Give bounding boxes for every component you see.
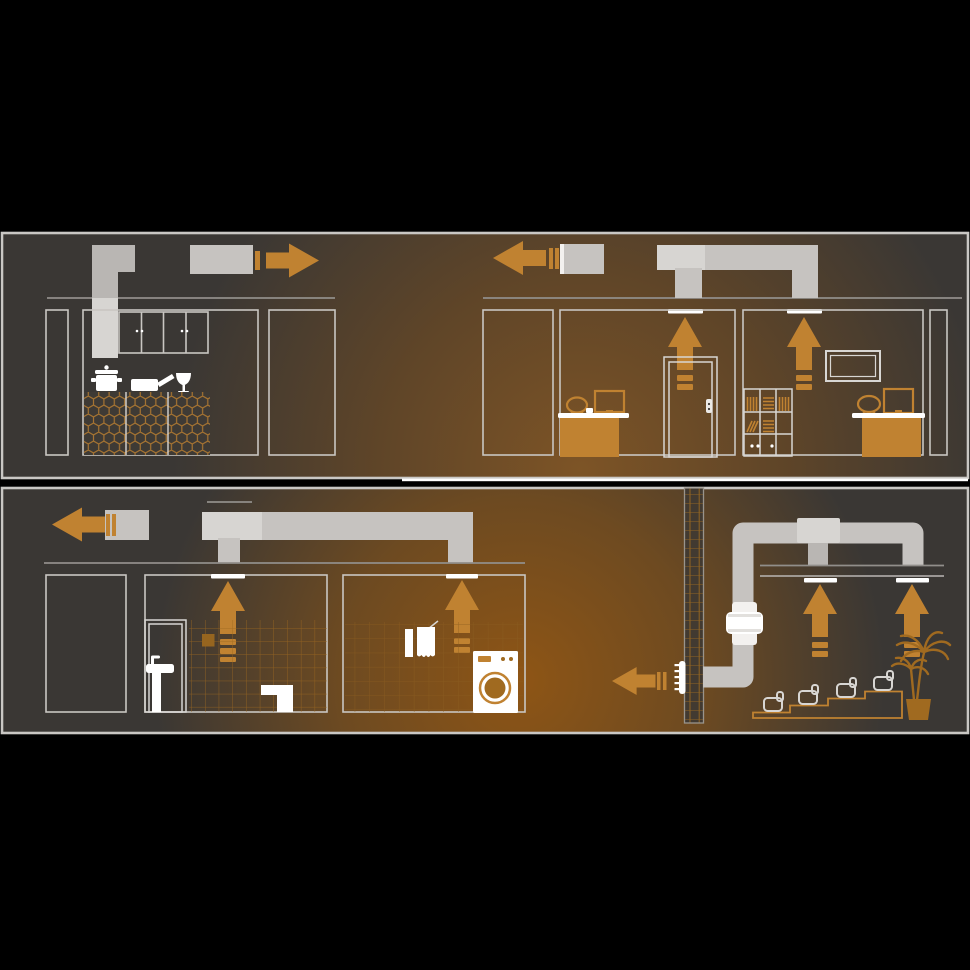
roof-line	[402, 479, 968, 482]
arrow-connector-bar	[663, 672, 667, 690]
scene-svg	[0, 0, 970, 970]
desk-top	[558, 413, 629, 418]
ventilation-scheme-illustration	[0, 0, 970, 970]
duct-open-end	[560, 244, 564, 274]
lower-panel	[2, 488, 968, 733]
ceiling-vent	[896, 578, 929, 583]
ceiling-vent	[804, 578, 837, 583]
arrow-connector-bar	[555, 248, 559, 269]
ceiling-vent	[446, 574, 478, 579]
office-desk-icon	[862, 418, 921, 457]
arrow-connector-bar	[657, 672, 661, 690]
cooker-hood-icon	[92, 298, 118, 358]
washing-machine-icon	[473, 651, 518, 713]
wall-grille-icon	[675, 661, 686, 694]
duct-shaft-icon	[685, 488, 704, 723]
arrow-connector-bar	[549, 248, 553, 269]
arrow-connector-bar	[255, 251, 260, 270]
upper-panel	[2, 233, 968, 478]
office-exhaust-duct	[560, 244, 604, 274]
bathroom-tiles	[189, 620, 327, 712]
t-branch-box	[797, 518, 840, 543]
honeycomb-counter-icon	[84, 392, 210, 455]
bath-exhaust-duct	[105, 510, 149, 540]
arrow-connector-bar	[106, 514, 110, 536]
ceiling-vent	[211, 574, 245, 579]
cup-icon	[586, 408, 593, 413]
kitchen-exhaust-duct	[190, 245, 253, 274]
office-desk-icon	[560, 418, 619, 457]
arrow-connector-bar	[112, 514, 116, 536]
desk-top	[852, 413, 925, 418]
